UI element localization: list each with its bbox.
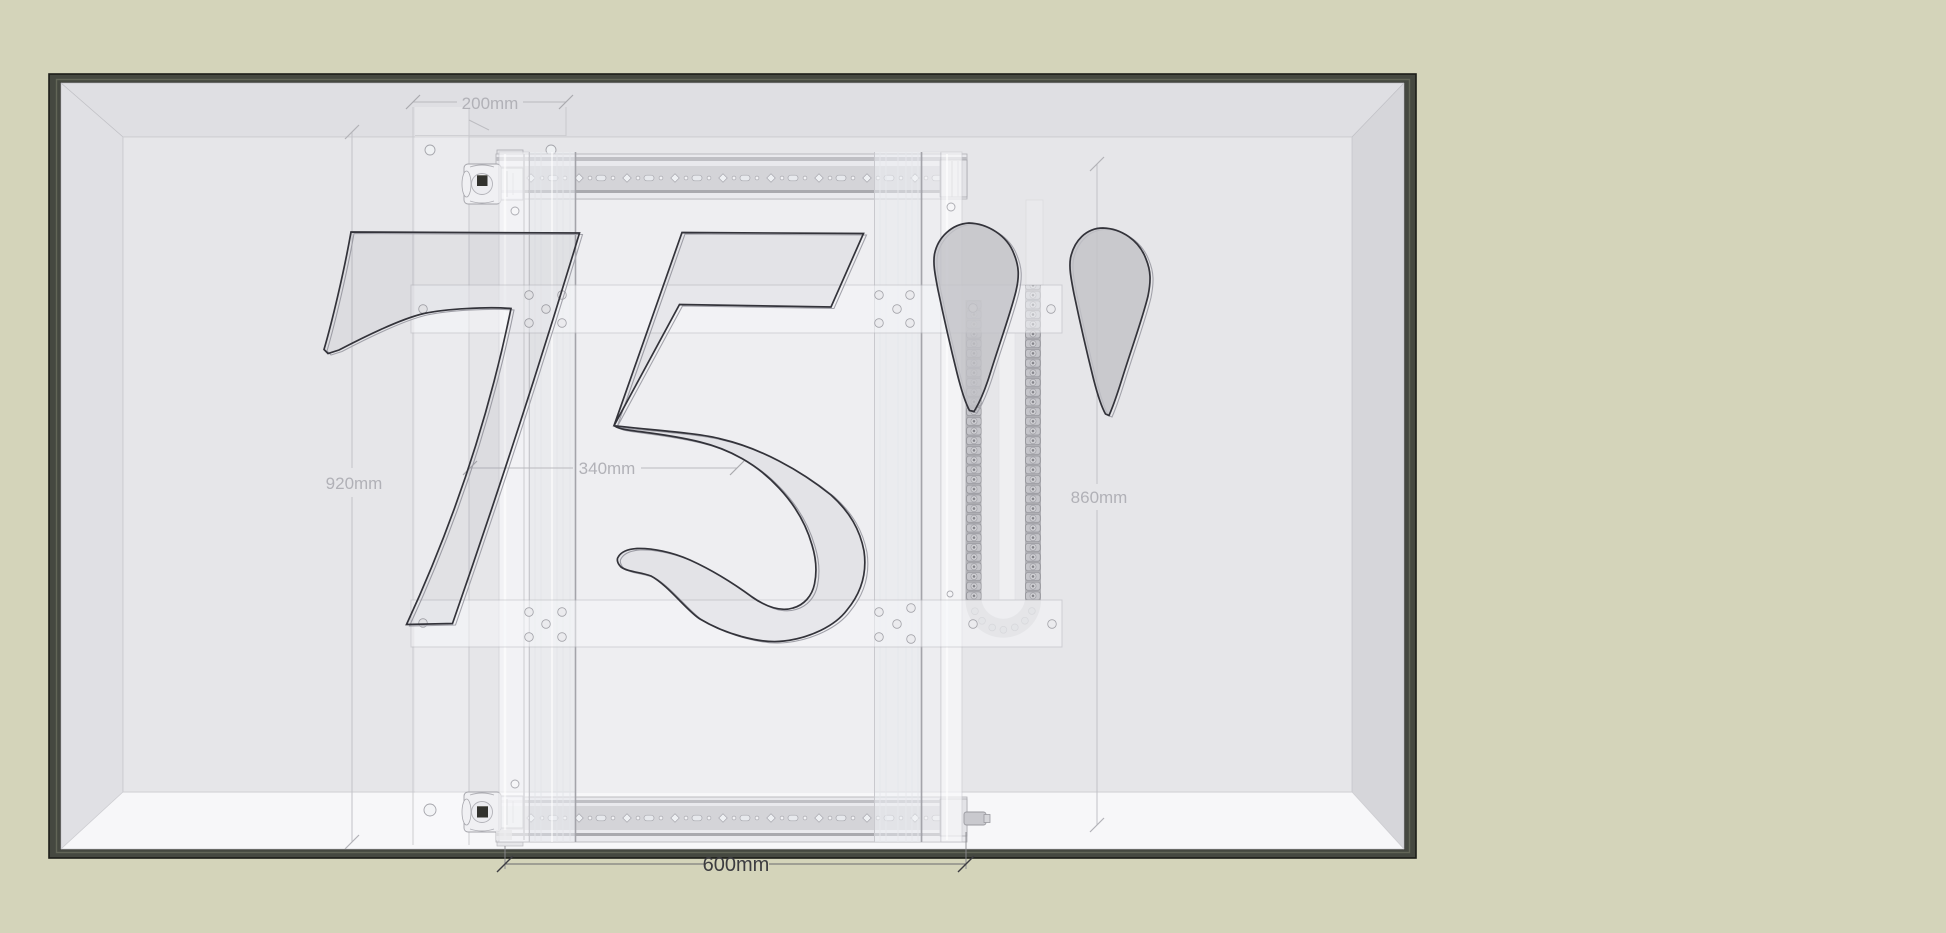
svg-text:340mm: 340mm bbox=[579, 459, 636, 478]
svg-text:920mm: 920mm bbox=[326, 474, 383, 493]
svg-text:860mm: 860mm bbox=[1071, 488, 1128, 507]
svg-text:200mm: 200mm bbox=[462, 94, 519, 113]
svg-text:600mm: 600mm bbox=[703, 854, 770, 876]
